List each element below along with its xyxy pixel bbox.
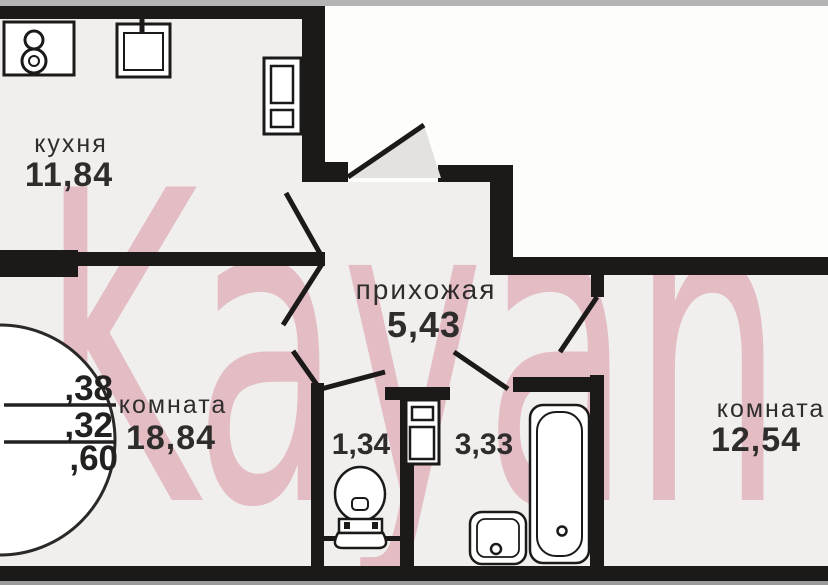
- wall: [302, 6, 325, 182]
- wall: [78, 252, 325, 266]
- wc-area: 1,34: [332, 430, 390, 460]
- room-right-area: 12,54: [711, 423, 801, 457]
- wall: [0, 581, 828, 585]
- stove-icon: [4, 22, 74, 75]
- wall: [0, 566, 828, 581]
- room-left-area: 18,84: [126, 421, 216, 455]
- wall: [0, 250, 78, 277]
- water-heater-icon: [406, 400, 439, 464]
- wall: [311, 383, 324, 566]
- kitchen-label: кухня: [34, 132, 108, 157]
- hallway-area: 5,43: [387, 307, 461, 343]
- wall: [0, 0, 828, 6]
- wall: [590, 375, 604, 566]
- wall: [591, 275, 604, 297]
- hallway-label: прихожая: [356, 276, 497, 304]
- wall: [513, 377, 593, 392]
- kitchen-area: 11,84: [25, 158, 113, 192]
- toilet-icon: [335, 467, 386, 548]
- washbasin-icon: [470, 512, 526, 564]
- floor-plan: Kayan ,38 ,32 ,60: [0, 0, 828, 585]
- wall: [0, 6, 325, 19]
- bathtub-icon: [530, 405, 589, 563]
- area-line-1: ,38: [64, 369, 113, 408]
- bathroom-area: 3,33: [455, 430, 513, 460]
- area-line-3: ,60: [69, 439, 118, 478]
- wall: [302, 162, 348, 182]
- wall: [513, 257, 828, 275]
- wall: [385, 387, 450, 400]
- room-left-label: комната: [119, 393, 228, 418]
- wall: [490, 165, 513, 275]
- fridge-icon: [264, 58, 301, 134]
- room-right-label: комната: [717, 397, 826, 422]
